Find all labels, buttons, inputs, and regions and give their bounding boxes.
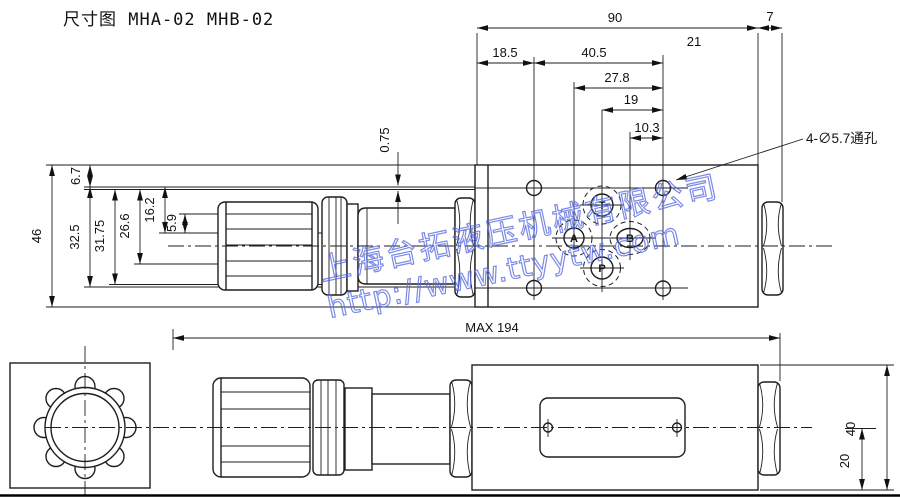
hex-fitting-right bbox=[762, 202, 783, 295]
neck-bottom bbox=[372, 394, 450, 464]
dim-27-8: 27.8 bbox=[604, 70, 629, 85]
hole-note: 4-∅5.7通孔 bbox=[806, 131, 878, 146]
dim-max-194: MAX 194 bbox=[465, 320, 518, 335]
dim-46: 46 bbox=[29, 229, 44, 243]
drawing-page: T A B P bbox=[0, 0, 900, 497]
dim-18-5: 18.5 bbox=[492, 45, 517, 60]
spacer-ring-bottom bbox=[345, 388, 372, 470]
bottom-views: MAX 194 40 20 bbox=[10, 320, 894, 496]
dim-26-6: 26.6 bbox=[117, 213, 132, 238]
dim-20: 20 bbox=[837, 454, 852, 468]
drawing-title: 尺寸图 MHA-02 MHB-02 bbox=[63, 10, 274, 30]
dim-40: 40 bbox=[843, 422, 858, 436]
dim-19: 19 bbox=[624, 92, 638, 107]
hex-fitting-left-bottom bbox=[450, 380, 472, 477]
dim-90: 90 bbox=[608, 10, 622, 25]
dim-16-2: 16.2 bbox=[142, 197, 157, 222]
front-view bbox=[10, 346, 150, 496]
dim-10-3: 10.3 bbox=[634, 120, 659, 135]
hex-fitting-right-bottom bbox=[758, 382, 780, 475]
dim-40-5: 40.5 bbox=[581, 45, 606, 60]
dim-5-9: 5.9 bbox=[164, 214, 179, 232]
dim-7: 7 bbox=[766, 9, 773, 24]
technical-drawing: T A B P bbox=[0, 0, 900, 497]
dim-31-75: 31.75 bbox=[92, 220, 107, 253]
dim-32-5: 32.5 bbox=[67, 224, 82, 249]
dim-6-7: 6.7 bbox=[68, 167, 83, 185]
dim-0-75: 0.75 bbox=[377, 127, 392, 152]
side-view: T A B P bbox=[29, 9, 878, 307]
bottom-view bbox=[45, 365, 812, 490]
dim-21: 21 bbox=[687, 34, 701, 49]
